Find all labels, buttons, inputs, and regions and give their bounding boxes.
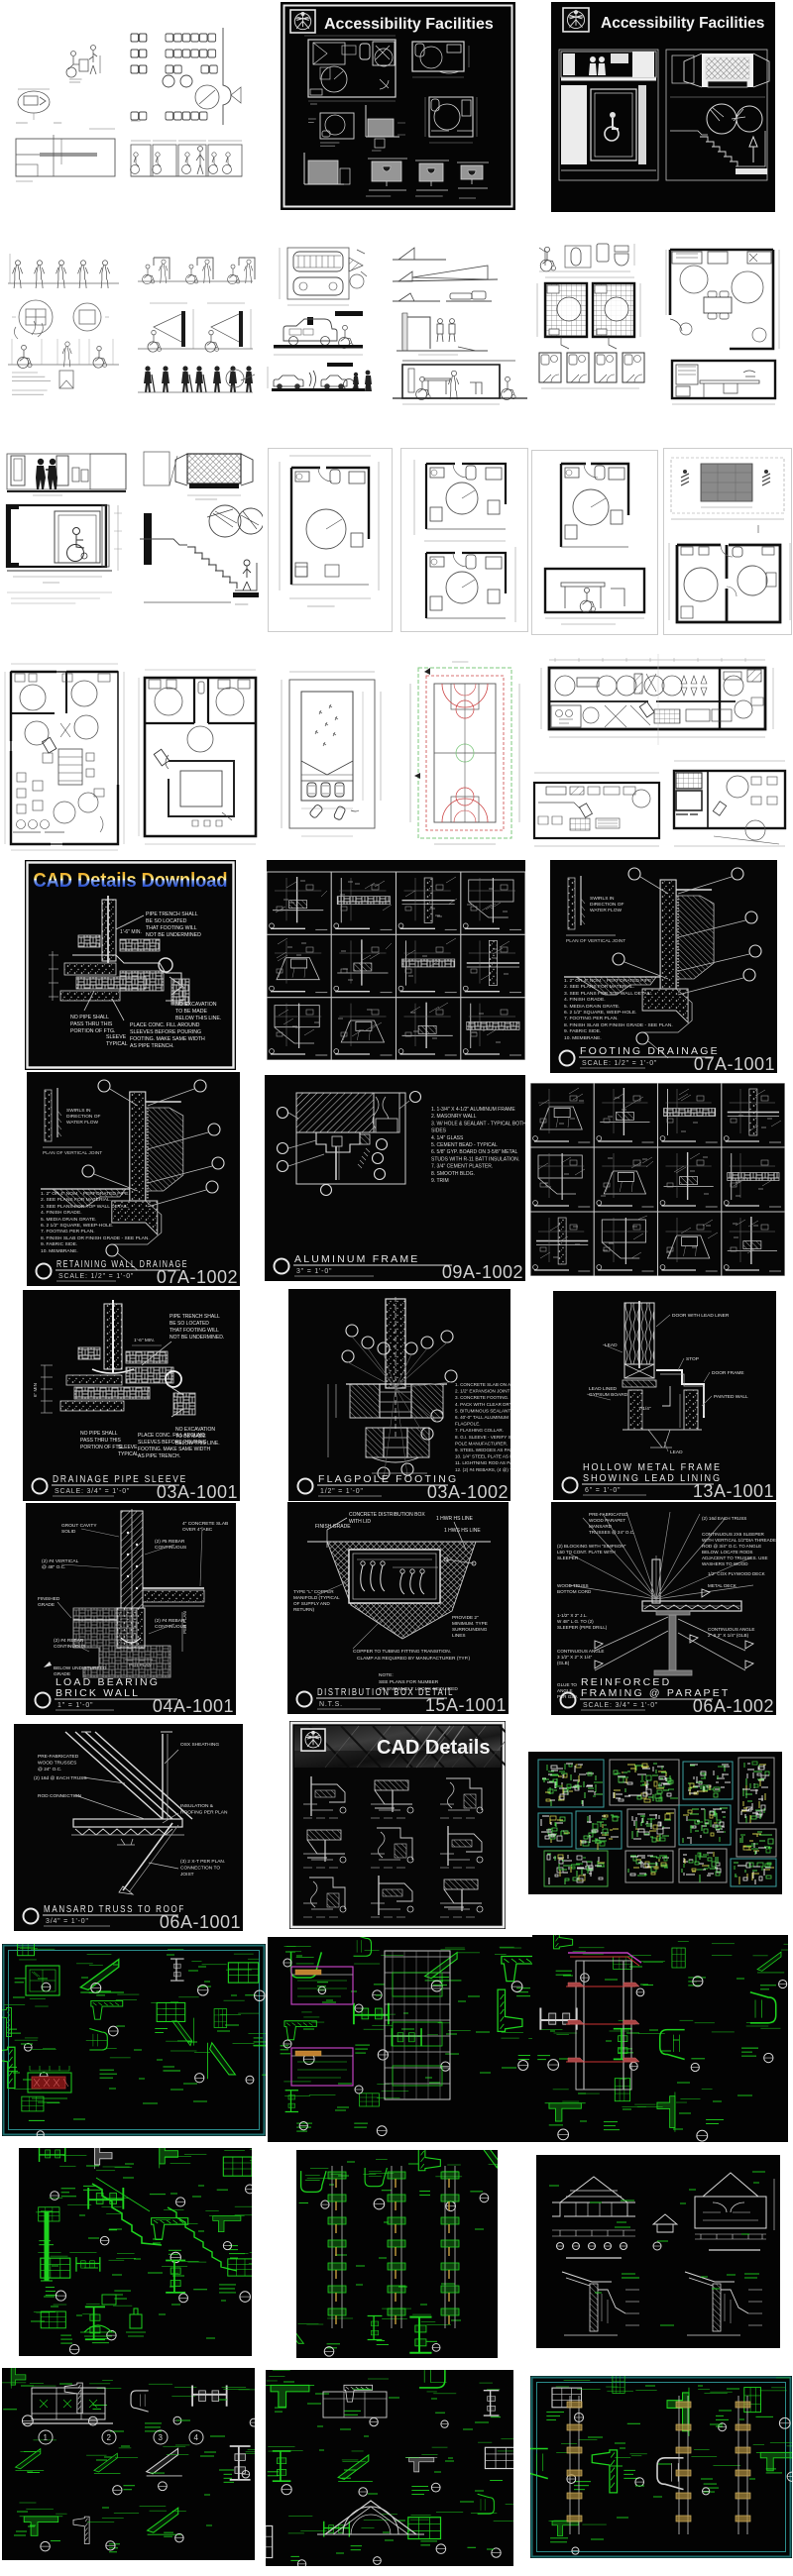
svg-text:LEAD LINED: LEAD LINED: [589, 1386, 618, 1392]
svg-text:TYPICAL: TYPICAL: [106, 1041, 128, 1047]
svg-text:OVER 4" ABC: OVER 4" ABC: [182, 1527, 213, 1533]
svg-text:DOOR WITH LEAD LINER: DOOR WITH LEAD LINER: [672, 1313, 730, 1319]
svg-text:JOIST: JOIST: [180, 1872, 194, 1878]
svg-text:SIDES: SIDES: [431, 1128, 447, 1134]
svg-text:15A-1001: 15A-1001: [425, 1695, 507, 1714]
svg-text:3" = 1'-0": 3" = 1'-0": [296, 1268, 332, 1275]
svg-text:GRADE: GRADE: [38, 1602, 55, 1608]
svg-text:BOTTOM CORD: BOTTOM CORD: [557, 1589, 592, 1594]
svg-text:NO PIPE SHALL: NO PIPE SHALL: [70, 1015, 109, 1020]
svg-text:ROD CONNECTION: ROD CONNECTION: [38, 1793, 82, 1799]
svg-text:1'-6" MIN.: 1'-6" MIN.: [134, 1338, 155, 1343]
svg-text:2" X 2" X 1/4" (GLB): 2" X 2" X 1/4" (GLB): [708, 1633, 749, 1638]
svg-text:6" MIN: 6" MIN: [33, 1383, 38, 1397]
svg-text:10. MEMBRANE.: 10. MEMBRANE.: [41, 1248, 78, 1254]
svg-text:N.T.S.: N.T.S.: [319, 1701, 343, 1708]
svg-text:(2) BLOCKING WITH "SIMPSON": (2) BLOCKING WITH "SIMPSON": [557, 1544, 626, 1549]
svg-text:ROD @ 3/4" O.C. TO ANGLE: ROD @ 3/4" O.C. TO ANGLE: [702, 1544, 761, 1549]
svg-text:NOTE:: NOTE:: [379, 1672, 394, 1678]
svg-text:04A-1001: 04A-1001: [153, 1696, 234, 1715]
svg-text:INSULATION &: INSULATION &: [180, 1803, 214, 1809]
svg-text:3. W/ HOLE & SEALANT - TYPICA: 3. W/ HOLE & SEALANT - TYPICAL BOTH: [431, 1121, 525, 1127]
svg-text:1/2" = 1'-0": 1/2" = 1'-0": [320, 1488, 364, 1495]
svg-text:03A-1001: 03A-1001: [157, 1482, 238, 1501]
svg-text:CONTINUOUS ANGLE: CONTINUOUS ANGLE: [557, 1649, 604, 1654]
svg-text:9. STEEL WEDGES AS PART OF SL: 9. STEEL WEDGES AS PART OF SLEEVE.: [455, 1448, 510, 1452]
svg-text:8. SMOOTH BLDG.: 8. SMOOTH BLDG.: [431, 1171, 475, 1177]
svg-text:1. CONCRETE SLAB ON A.B.C. FI: 1. CONCRETE SLAB ON A.B.C. FILL.: [455, 1382, 510, 1387]
svg-text:MINIMUM. TYPE: MINIMUM. TYPE: [452, 1621, 488, 1626]
svg-text:BELOW THIS LINE.: BELOW THIS LINE.: [175, 1016, 221, 1021]
svg-text:AS PIPE TRENCH.: AS PIPE TRENCH.: [138, 1453, 180, 1459]
svg-text:CONTINUOUS 2X6 SLEEPER: CONTINUOUS 2X6 SLEEPER: [702, 1532, 764, 1537]
svg-text:PLACE CONC. FILL AROUND: PLACE CONC. FILL AROUND: [138, 1433, 205, 1439]
svg-text:3 1/2" X 2" X 1/4": 3 1/2" X 2" X 1/4": [557, 1655, 593, 1660]
svg-text:WOOD TRUSSES: WOOD TRUSSES: [38, 1760, 76, 1766]
svg-text:3: 3: [159, 2433, 164, 2442]
svg-text:LINES: LINES: [452, 1633, 466, 1638]
svg-text:1" = 1'-0": 1" = 1'-0": [57, 1702, 93, 1709]
svg-text:RETURN): RETURN): [293, 1607, 315, 1612]
svg-text:2. SEE PLANS FOR MATERIAL.: 2. SEE PLANS FOR MATERIAL.: [41, 1197, 111, 1203]
svg-text:WOOD PARAPET: WOOD PARAPET: [589, 1518, 625, 1523]
svg-text:1/2" COX PLYWOOD DECK: 1/2" COX PLYWOOD DECK: [708, 1571, 766, 1576]
svg-text:1-1/2" X 2" J.L.: 1-1/2" X 2" J.L.: [557, 1613, 588, 1618]
svg-text:NO PIPE SHALL: NO PIPE SHALL: [80, 1431, 118, 1437]
svg-text:CONCRETE DISTRIBUTION BOX: CONCRETE DISTRIBUTION BOX: [349, 1512, 425, 1518]
svg-text:MANSARD: MANSARD: [589, 1524, 613, 1529]
svg-text:SEE PLANS FOR NUMBER: SEE PLANS FOR NUMBER: [379, 1679, 439, 1685]
svg-text:4: 4: [194, 2433, 199, 2442]
svg-text:PASS THRU THIS: PASS THRU THIS: [80, 1438, 122, 1444]
svg-text:NOT BE UNDERMINED.: NOT BE UNDERMINED.: [170, 1335, 224, 1341]
svg-text:(2) #4 VERTICAL: (2) #4 VERTICAL: [42, 1558, 79, 1564]
svg-text:13A-1001: 13A-1001: [693, 1481, 774, 1500]
svg-text:3. CONCRETE FOOTING.: 3. CONCRETE FOOTING.: [455, 1395, 509, 1400]
svg-text:09A-1002: 09A-1002: [442, 1262, 523, 1281]
svg-text:FINISH GRADE: FINISH GRADE: [315, 1524, 351, 1530]
svg-text:4. FINISH GRADE.: 4. FINISH GRADE.: [564, 997, 606, 1003]
svg-text:6. 5/8" GYP. BOARD ON 3-5/8": 6. 5/8" GYP. BOARD ON 3-5/8" METAL: [431, 1149, 518, 1155]
svg-text:SCALE: 3/4" = 1'-0": SCALE: 3/4" = 1'-0": [55, 1488, 130, 1495]
svg-text:7-1/4": 7-1/4": [638, 1406, 651, 1412]
svg-text:6. 2 1/2" SQUARE, WEEP-HOLE.: 6. 2 1/2" SQUARE, WEEP-HOLE.: [564, 1010, 637, 1016]
svg-text:TRUSSES @ 24" O.C.: TRUSSES @ 24" O.C.: [589, 1530, 634, 1535]
svg-text:07A-1002: 07A-1002: [157, 1267, 238, 1286]
svg-text:COPPER TO TUBING FITTING TRANS: COPPER TO TUBING FITTING TRANSITION.: [353, 1649, 451, 1655]
svg-text:OF SUPPLY AND: OF SUPPLY AND: [293, 1601, 330, 1606]
svg-text:BELOW. LOCATE RODS: BELOW. LOCATE RODS: [702, 1550, 752, 1555]
svg-text:SLEEVES BEFORE POURING: SLEEVES BEFORE POURING: [138, 1440, 207, 1446]
svg-text:STUDS WITH R-11 BATT INSULATIO: STUDS WITH R-11 BATT INSULATION.: [431, 1156, 519, 1162]
svg-text:CAD Details Download: CAD Details Download: [34, 870, 228, 892]
svg-text:PIPE TRENCH SHALL: PIPE TRENCH SHALL: [170, 1314, 220, 1320]
svg-text:SOLID: SOLID: [61, 1529, 76, 1535]
svg-text:BRICK WALL: BRICK WALL: [56, 1687, 140, 1699]
svg-text:(2) #4 REBAR: (2) #4 REBAR: [155, 1618, 185, 1624]
svg-text:06A-1001: 06A-1001: [160, 1912, 241, 1931]
svg-text:CONTINUOUS: CONTINUOUS: [155, 1624, 186, 1630]
svg-text:THAT FOOTING WILL: THAT FOOTING WILL: [170, 1328, 219, 1334]
svg-text:(2) 16d EACH TRUSS: (2) 16d EACH TRUSS: [702, 1516, 746, 1521]
svg-text:CONNECTION TO: CONNECTION TO: [180, 1865, 220, 1871]
svg-text:2: 2: [107, 2433, 112, 2442]
svg-text:NOT BE UNDERMINED: NOT BE UNDERMINED: [146, 932, 201, 938]
svg-text:1 HWS HS LINE: 1 HWS HS LINE: [444, 1528, 481, 1534]
svg-text:BE SO LOCATED: BE SO LOCATED: [170, 1321, 209, 1327]
svg-text:8. G.I. SLEEVE - VERIFY SIZE: 8. G.I. SLEEVE - VERIFY SIZE WITH: [455, 1435, 510, 1440]
svg-text:SCALE: 1/2" = 1'-0": SCALE: 1/2" = 1'-0": [582, 1060, 657, 1067]
svg-text:1 HWR HS LINE: 1 HWR HS LINE: [436, 1516, 474, 1522]
svg-text:7. FOOTING PER PLAN.: 7. FOOTING PER PLAN.: [41, 1229, 95, 1234]
svg-text:(GLB): (GLB): [557, 1661, 570, 1665]
svg-text:CAD Details: CAD Details: [377, 1737, 490, 1759]
svg-text:8. FINISH SLAB OR FINISH GRAD: 8. FINISH SLAB OR FINISH GRADE - SEE PLA…: [564, 1022, 673, 1028]
svg-text:WATER FLOW: WATER FLOW: [590, 908, 622, 913]
svg-text:6" = 1'-0": 6" = 1'-0": [585, 1487, 621, 1494]
svg-text:ADJACENT TO TRUSSES. USE: ADJACENT TO TRUSSES. USE: [702, 1556, 768, 1560]
svg-text:5. CEMENT BEAD - TYPICAL: 5. CEMENT BEAD - TYPICAL: [431, 1142, 498, 1148]
svg-text:2. SEE PLANS FOR MATERIAL.: 2. SEE PLANS FOR MATERIAL.: [564, 984, 634, 990]
svg-text:3/4" = 1'-0": 3/4" = 1'-0": [46, 1918, 89, 1925]
svg-text:FOOTING. MAKE SAME WIDTH: FOOTING. MAKE SAME WIDTH: [138, 1447, 210, 1452]
svg-text:TYPE "L" COPPER: TYPE "L" COPPER: [293, 1589, 334, 1594]
svg-text:06A-1002: 06A-1002: [693, 1696, 774, 1715]
svg-text:GLUE TO: GLUE TO: [557, 1682, 577, 1687]
svg-text:SCALE: 1/2" = 1'-0": SCALE: 1/2" = 1'-0": [58, 1273, 134, 1280]
svg-text:1'-6" MIN.: 1'-6" MIN.: [120, 929, 142, 935]
svg-text:5. MEDIA DRAIN GRATE.: 5. MEDIA DRAIN GRATE.: [41, 1217, 96, 1223]
svg-text:@ 48" O.C.: @ 48" O.C.: [42, 1564, 65, 1570]
svg-text:2. 1/2" EXPANSION JOINT MATER: 2. 1/2" EXPANSION JOINT MATERIAL.: [455, 1389, 510, 1394]
svg-text:WITH VERTICAL 1/2"DIA THREADED: WITH VERTICAL 1/2"DIA THREADED: [702, 1538, 776, 1543]
svg-text:1. 1-3/4" X 4-1/2" ALUMINUM F: 1. 1-3/4" X 4-1/2" ALUMINUM FRAME: [431, 1107, 515, 1113]
svg-text:SLEEPER: SLEEPER: [557, 1556, 579, 1560]
svg-text:CONTINUOUS: CONTINUOUS: [54, 1644, 85, 1650]
svg-text:4. 1/4" GLASS: 4. 1/4" GLASS: [431, 1135, 464, 1141]
svg-text:4" CONCRETE SLAB: 4" CONCRETE SLAB: [182, 1521, 228, 1527]
svg-text:9. FABRIC SIDE.: 9. FABRIC SIDE.: [564, 1028, 601, 1034]
svg-text:9. FABRIC SIDE.: 9. FABRIC SIDE.: [41, 1241, 77, 1247]
svg-text:7. FOOTING PER PLAN.: 7. FOOTING PER PLAN.: [564, 1016, 619, 1021]
svg-text:SLEEVE: SLEEVE: [106, 1034, 127, 1040]
svg-text:@ 24" O.C.: @ 24" O.C.: [38, 1767, 61, 1772]
svg-text:LEAD: LEAD: [670, 1449, 683, 1455]
svg-text:METAL DECK: METAL DECK: [708, 1583, 737, 1588]
svg-text:11. LIGHTNING ROD AS PART OF S: 11. LIGHTNING ROD AS PART OF SLEEVE.: [455, 1460, 510, 1465]
svg-text:2. MASONRY WALL: 2. MASONRY WALL: [431, 1114, 477, 1120]
svg-text:CLAMP AS REQUIRED BY MANUFACTU: CLAMP AS REQUIRED BY MANUFACTURER (TYP.): [357, 1656, 470, 1662]
svg-text:DOOR FRAME: DOOR FRAME: [712, 1370, 744, 1376]
svg-text:SWIRLS IN: SWIRLS IN: [590, 896, 615, 902]
svg-text:9. TRIM: 9. TRIM: [431, 1178, 449, 1184]
svg-text:WATER FLOW: WATER FLOW: [66, 1120, 98, 1126]
svg-text:1: 1: [44, 2433, 49, 2442]
svg-text:PASS THRU THIS: PASS THRU THIS: [70, 1021, 113, 1027]
svg-text:(3) 2 X-T PER PLAN.: (3) 2 X-T PER PLAN.: [180, 1859, 225, 1865]
svg-text:PLACE CONC. FILL AROUND: PLACE CONC. FILL AROUND: [130, 1022, 200, 1028]
svg-text:DIRECTION OF: DIRECTION OF: [66, 1114, 100, 1120]
svg-text:ROOFING PER PLAN: ROOFING PER PLAN: [180, 1809, 228, 1815]
svg-text:PIPE TRENCH SHALL: PIPE TRENCH SHALL: [146, 912, 198, 917]
svg-text:PLAN OF VERTICAL JOINT: PLAN OF VERTICAL JOINT: [566, 938, 625, 944]
svg-text:NO EXCAVATION: NO EXCAVATION: [175, 1002, 217, 1008]
svg-text:SLEEPER (PIPE DRILL): SLEEPER (PIPE DRILL): [557, 1625, 608, 1630]
svg-text:FINISHED: FINISHED: [38, 1596, 60, 1602]
svg-text:1. 2" OR 4" NOM. - PERFORATED: 1. 2" OR 4" NOM. - PERFORATED PIPE.: [564, 978, 653, 984]
svg-text:03A-1002: 03A-1002: [427, 1482, 509, 1501]
svg-text:PRE-FABRICATED: PRE-FABRICATED: [38, 1754, 79, 1760]
svg-text:12. (2) #4 REBARS, (4 @) TIES: 12. (2) #4 REBARS, (4 @) TIES @ 14" O.C.: [455, 1467, 510, 1472]
svg-text:7. 3/4" CEMENT PLASTER.: 7. 3/4" CEMENT PLASTER.: [431, 1164, 493, 1170]
svg-text:WOOD TRUSS: WOOD TRUSS: [557, 1583, 589, 1588]
svg-text:FLAGPOLE.: FLAGPOLE.: [455, 1422, 481, 1427]
svg-text:TO BE MADE: TO BE MADE: [175, 1009, 207, 1015]
svg-text:MANIFOLD (TYPICAL: MANIFOLD (TYPICAL: [293, 1595, 340, 1600]
svg-text:L50 TO CONT. PLATE WITH: L50 TO CONT. PLATE WITH: [557, 1550, 616, 1555]
svg-text:GYPSUM BOARD: GYPSUM BOARD: [589, 1392, 628, 1398]
svg-text:STOP: STOP: [686, 1356, 699, 1362]
svg-text:3. SEE PLANS FOR TOP WALL DET: 3. SEE PLANS FOR TOP WALL DETAIL.: [564, 991, 652, 997]
svg-text:6. 40'-0" TALL ALUMINUM: 6. 40'-0" TALL ALUMINUM: [455, 1415, 509, 1420]
svg-text:W 48" L.G. TO (2): W 48" L.G. TO (2): [557, 1619, 594, 1624]
svg-text:3. SEE PLANS FOR TOP WALL DET: 3. SEE PLANS FOR TOP WALL DETAIL.: [41, 1204, 129, 1210]
svg-text:SLEEVES BEFORE POURING: SLEEVES BEFORE POURING: [130, 1029, 201, 1035]
svg-text:BELOW UNDISTURBED: BELOW UNDISTURBED: [54, 1665, 107, 1671]
svg-text:GROUT CAVITY: GROUT CAVITY: [61, 1523, 97, 1529]
svg-text:PROVIDE 2": PROVIDE 2": [452, 1615, 479, 1620]
svg-text:PLAN OF VERTICAL JOINT: PLAN OF VERTICAL JOINT: [43, 1150, 102, 1156]
svg-text:5. BITUMINOUS SEALANT.: 5. BITUMINOUS SEALANT.: [455, 1408, 510, 1413]
svg-text:(2) #4 REBAR: (2) #4 REBAR: [54, 1638, 84, 1644]
svg-text:Accessibility Facilities: Accessibility Facilities: [324, 16, 494, 33]
svg-text:WASHERS TO WOOD: WASHERS TO WOOD: [702, 1561, 748, 1566]
svg-text:Accessibility Facilities: Accessibility Facilities: [601, 15, 764, 32]
svg-text:(2) #5 REBAR: (2) #5 REBAR: [155, 1539, 185, 1545]
svg-text:7. FLASHING COLLAR.: 7. FLASHING COLLAR.: [455, 1428, 504, 1433]
svg-text:4. FINISH GRADE.: 4. FINISH GRADE.: [41, 1210, 82, 1216]
svg-text:(2) 16d @ EACH TRUSS: (2) 16d @ EACH TRUSS: [34, 1775, 87, 1781]
svg-text:POLE MANUFACTURER.: POLE MANUFACTURER.: [455, 1441, 508, 1446]
svg-text:PER PLAN: PER PLAN: [129, 1663, 152, 1667]
svg-text:ALUMINUM FRAME: ALUMINUM FRAME: [294, 1253, 419, 1265]
svg-text:SLEEVE: SLEEVE: [118, 1445, 138, 1450]
svg-text:WITH LID: WITH LID: [349, 1519, 371, 1525]
svg-text:10. MEMBRANE.: 10. MEMBRANE.: [564, 1035, 602, 1041]
svg-text:SURROUNDING: SURROUNDING: [452, 1627, 488, 1632]
svg-text:FOOTING. MAKE SAME WIDTH: FOOTING. MAKE SAME WIDTH: [130, 1036, 205, 1042]
svg-text:THAT FOOTING WILL: THAT FOOTING WILL: [146, 925, 197, 931]
svg-text:5. MEDIA DRAIN GRATE.: 5. MEDIA DRAIN GRATE.: [564, 1004, 620, 1010]
svg-text:10. 1/4" STEEL PLATE AS PART O: 10. 1/4" STEEL PLATE AS PART OF SLEEVE.: [455, 1454, 510, 1459]
svg-text:07A-1001: 07A-1001: [694, 1054, 775, 1073]
svg-text:OSX SHEATHING: OSX SHEATHING: [180, 1742, 219, 1748]
svg-text:PAINTED WALL: PAINTED WALL: [714, 1394, 748, 1400]
svg-text:6. 2 1/2" SQUARE, WEEP-HOLE.: 6. 2 1/2" SQUARE, WEEP-HOLE.: [41, 1223, 114, 1229]
svg-text:8. FINISH SLAB OR FINISH GRAD: 8. FINISH SLAB OR FINISH GRADE - SEE PLA…: [41, 1235, 150, 1241]
svg-text:SCALE: 3/4" = 1'-0": SCALE: 3/4" = 1'-0": [583, 1702, 658, 1709]
svg-text:AS PIPE TRENCH.: AS PIPE TRENCH.: [130, 1043, 174, 1049]
svg-text:PRE-FABRICATED: PRE-FABRICATED: [589, 1512, 628, 1517]
svg-text:TYPICAL: TYPICAL: [118, 1451, 139, 1457]
svg-text:BE SO LOCATED: BE SO LOCATED: [146, 918, 187, 924]
svg-text:CONTINUOUS ANGLE: CONTINUOUS ANGLE: [708, 1627, 754, 1632]
svg-text:SWIRLS IN: SWIRLS IN: [66, 1108, 91, 1114]
svg-text:4. PACK WITH CLEAR DRY SAND.: 4. PACK WITH CLEAR DRY SAND.: [455, 1402, 510, 1407]
svg-text:1. 2" OR 4" NOM. - PERFORATED: 1. 2" OR 4" NOM. - PERFORATED PIPE.: [41, 1191, 130, 1197]
svg-text:DIRECTION OF: DIRECTION OF: [590, 902, 623, 908]
